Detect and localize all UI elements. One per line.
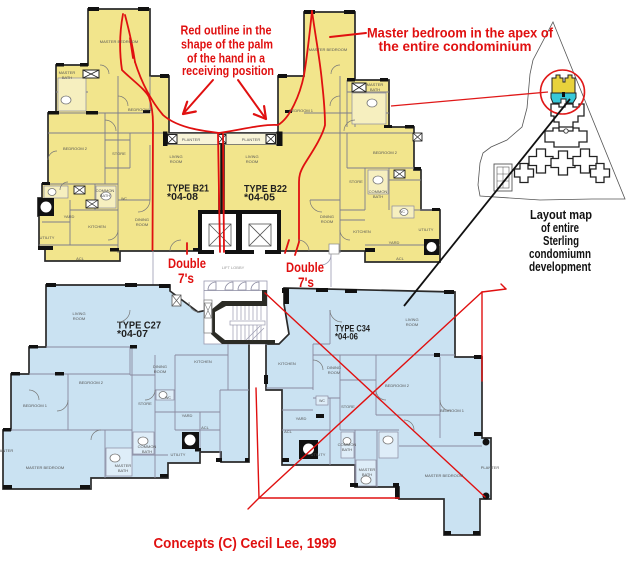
svg-text:YARD: YARD xyxy=(389,240,400,245)
svg-text:WC: WC xyxy=(319,399,325,403)
svg-text:*04-05: *04-05 xyxy=(244,192,275,204)
svg-text:BEDROOM 1: BEDROOM 1 xyxy=(23,403,48,408)
svg-text:Sterling: Sterling xyxy=(543,234,579,248)
svg-text:KITCHEN: KITCHEN xyxy=(88,224,106,229)
svg-text:ROOM: ROOM xyxy=(170,159,182,164)
svg-text:BATH: BATH xyxy=(62,75,72,80)
svg-text:KITCHEN: KITCHEN xyxy=(278,361,296,366)
svg-text:7's: 7's xyxy=(178,270,194,286)
svg-text:KITCHEN: KITCHEN xyxy=(194,359,212,364)
svg-text:STORE: STORE xyxy=(349,179,363,184)
svg-text:PLANTER: PLANTER xyxy=(242,137,261,142)
svg-text:ACL: ACL xyxy=(396,256,405,261)
svg-text:BATH: BATH xyxy=(118,468,128,473)
svg-text:condomiumn: condomiumn xyxy=(529,247,591,261)
svg-text:Concepts (C) Cecil Lee, 1999: Concepts (C) Cecil Lee, 1999 xyxy=(154,536,337,552)
svg-text:YARD: YARD xyxy=(64,214,75,219)
svg-text:BEDROOM 1: BEDROOM 1 xyxy=(289,108,314,113)
svg-text:ROOM: ROOM xyxy=(246,159,258,164)
svg-text:BATH: BATH xyxy=(342,447,352,452)
svg-text:WC: WC xyxy=(165,396,171,400)
svg-text:*04-08: *04-08 xyxy=(167,191,198,203)
svg-text:STORE: STORE xyxy=(112,151,126,156)
svg-text:MASTER BEDROOM: MASTER BEDROOM xyxy=(100,39,138,44)
svg-text:Layout map: Layout map xyxy=(530,208,592,222)
svg-text:BEDROOM 2: BEDROOM 2 xyxy=(385,383,410,388)
svg-text:BATH: BATH xyxy=(100,193,110,198)
svg-text:STORE: STORE xyxy=(341,404,355,409)
svg-text:WC: WC xyxy=(399,210,405,214)
svg-text:development: development xyxy=(529,260,592,274)
svg-text:LIFT LOBBY: LIFT LOBBY xyxy=(222,265,245,270)
svg-text:receiving position: receiving position xyxy=(182,64,274,78)
svg-text:YARD: YARD xyxy=(182,413,193,418)
svg-text:MASTER BEDROOM: MASTER BEDROOM xyxy=(425,473,463,478)
svg-text:ROOM: ROOM xyxy=(328,370,340,375)
svg-text:*04-07: *04-07 xyxy=(117,328,148,340)
svg-text:7's: 7's xyxy=(298,274,314,290)
svg-text:ACL: ACL xyxy=(201,425,210,430)
svg-text:BEDROOM 2: BEDROOM 2 xyxy=(63,146,88,151)
svg-text:shape of the palm: shape of the palm xyxy=(181,38,273,52)
svg-text:Double: Double xyxy=(286,259,324,275)
svg-text:ACL: ACL xyxy=(284,429,293,434)
svg-text:BEDROOM 1: BEDROOM 1 xyxy=(128,107,153,112)
svg-text:ACL: ACL xyxy=(76,256,85,261)
svg-text:PLANTER: PLANTER xyxy=(182,137,201,142)
svg-text:WC: WC xyxy=(121,197,127,201)
svg-text:BATH: BATH xyxy=(373,194,383,199)
svg-text:UTILITY: UTILITY xyxy=(311,452,326,457)
svg-text:ROOM: ROOM xyxy=(136,222,148,227)
svg-text:MASTER BEDROOM: MASTER BEDROOM xyxy=(26,465,64,470)
svg-text:MASTER BEDROOM: MASTER BEDROOM xyxy=(309,47,347,52)
svg-text:PLANTER: PLANTER xyxy=(0,448,13,453)
svg-text:*04-06: *04-06 xyxy=(335,332,358,343)
svg-text:the entire condominium: the entire condominium xyxy=(379,39,532,54)
svg-text:Double: Double xyxy=(168,255,206,271)
svg-text:UTILITY: UTILITY xyxy=(419,227,434,232)
svg-text:UTILITY: UTILITY xyxy=(40,235,55,240)
svg-text:BEDROOM 2: BEDROOM 2 xyxy=(373,150,398,155)
svg-text:ROOM: ROOM xyxy=(154,369,166,374)
svg-text:UTILITY: UTILITY xyxy=(171,452,186,457)
svg-text:BATH: BATH xyxy=(142,449,152,454)
svg-text:Red outline in the: Red outline in the xyxy=(181,24,272,38)
svg-text:BEDROOM 1: BEDROOM 1 xyxy=(440,408,465,413)
svg-text:ROOM: ROOM xyxy=(406,322,418,327)
svg-text:YARD: YARD xyxy=(296,416,307,421)
svg-text:of entire: of entire xyxy=(541,221,579,235)
svg-text:BATH: BATH xyxy=(362,472,372,477)
svg-text:BEDROOM 2: BEDROOM 2 xyxy=(79,380,104,385)
svg-text:PLANTER: PLANTER xyxy=(481,465,500,470)
svg-text:ROOM: ROOM xyxy=(73,316,85,321)
svg-text:KITCHEN: KITCHEN xyxy=(353,229,371,234)
svg-text:STORE: STORE xyxy=(138,401,152,406)
svg-text:ROOM: ROOM xyxy=(321,219,333,224)
svg-text:BATH: BATH xyxy=(370,87,380,92)
